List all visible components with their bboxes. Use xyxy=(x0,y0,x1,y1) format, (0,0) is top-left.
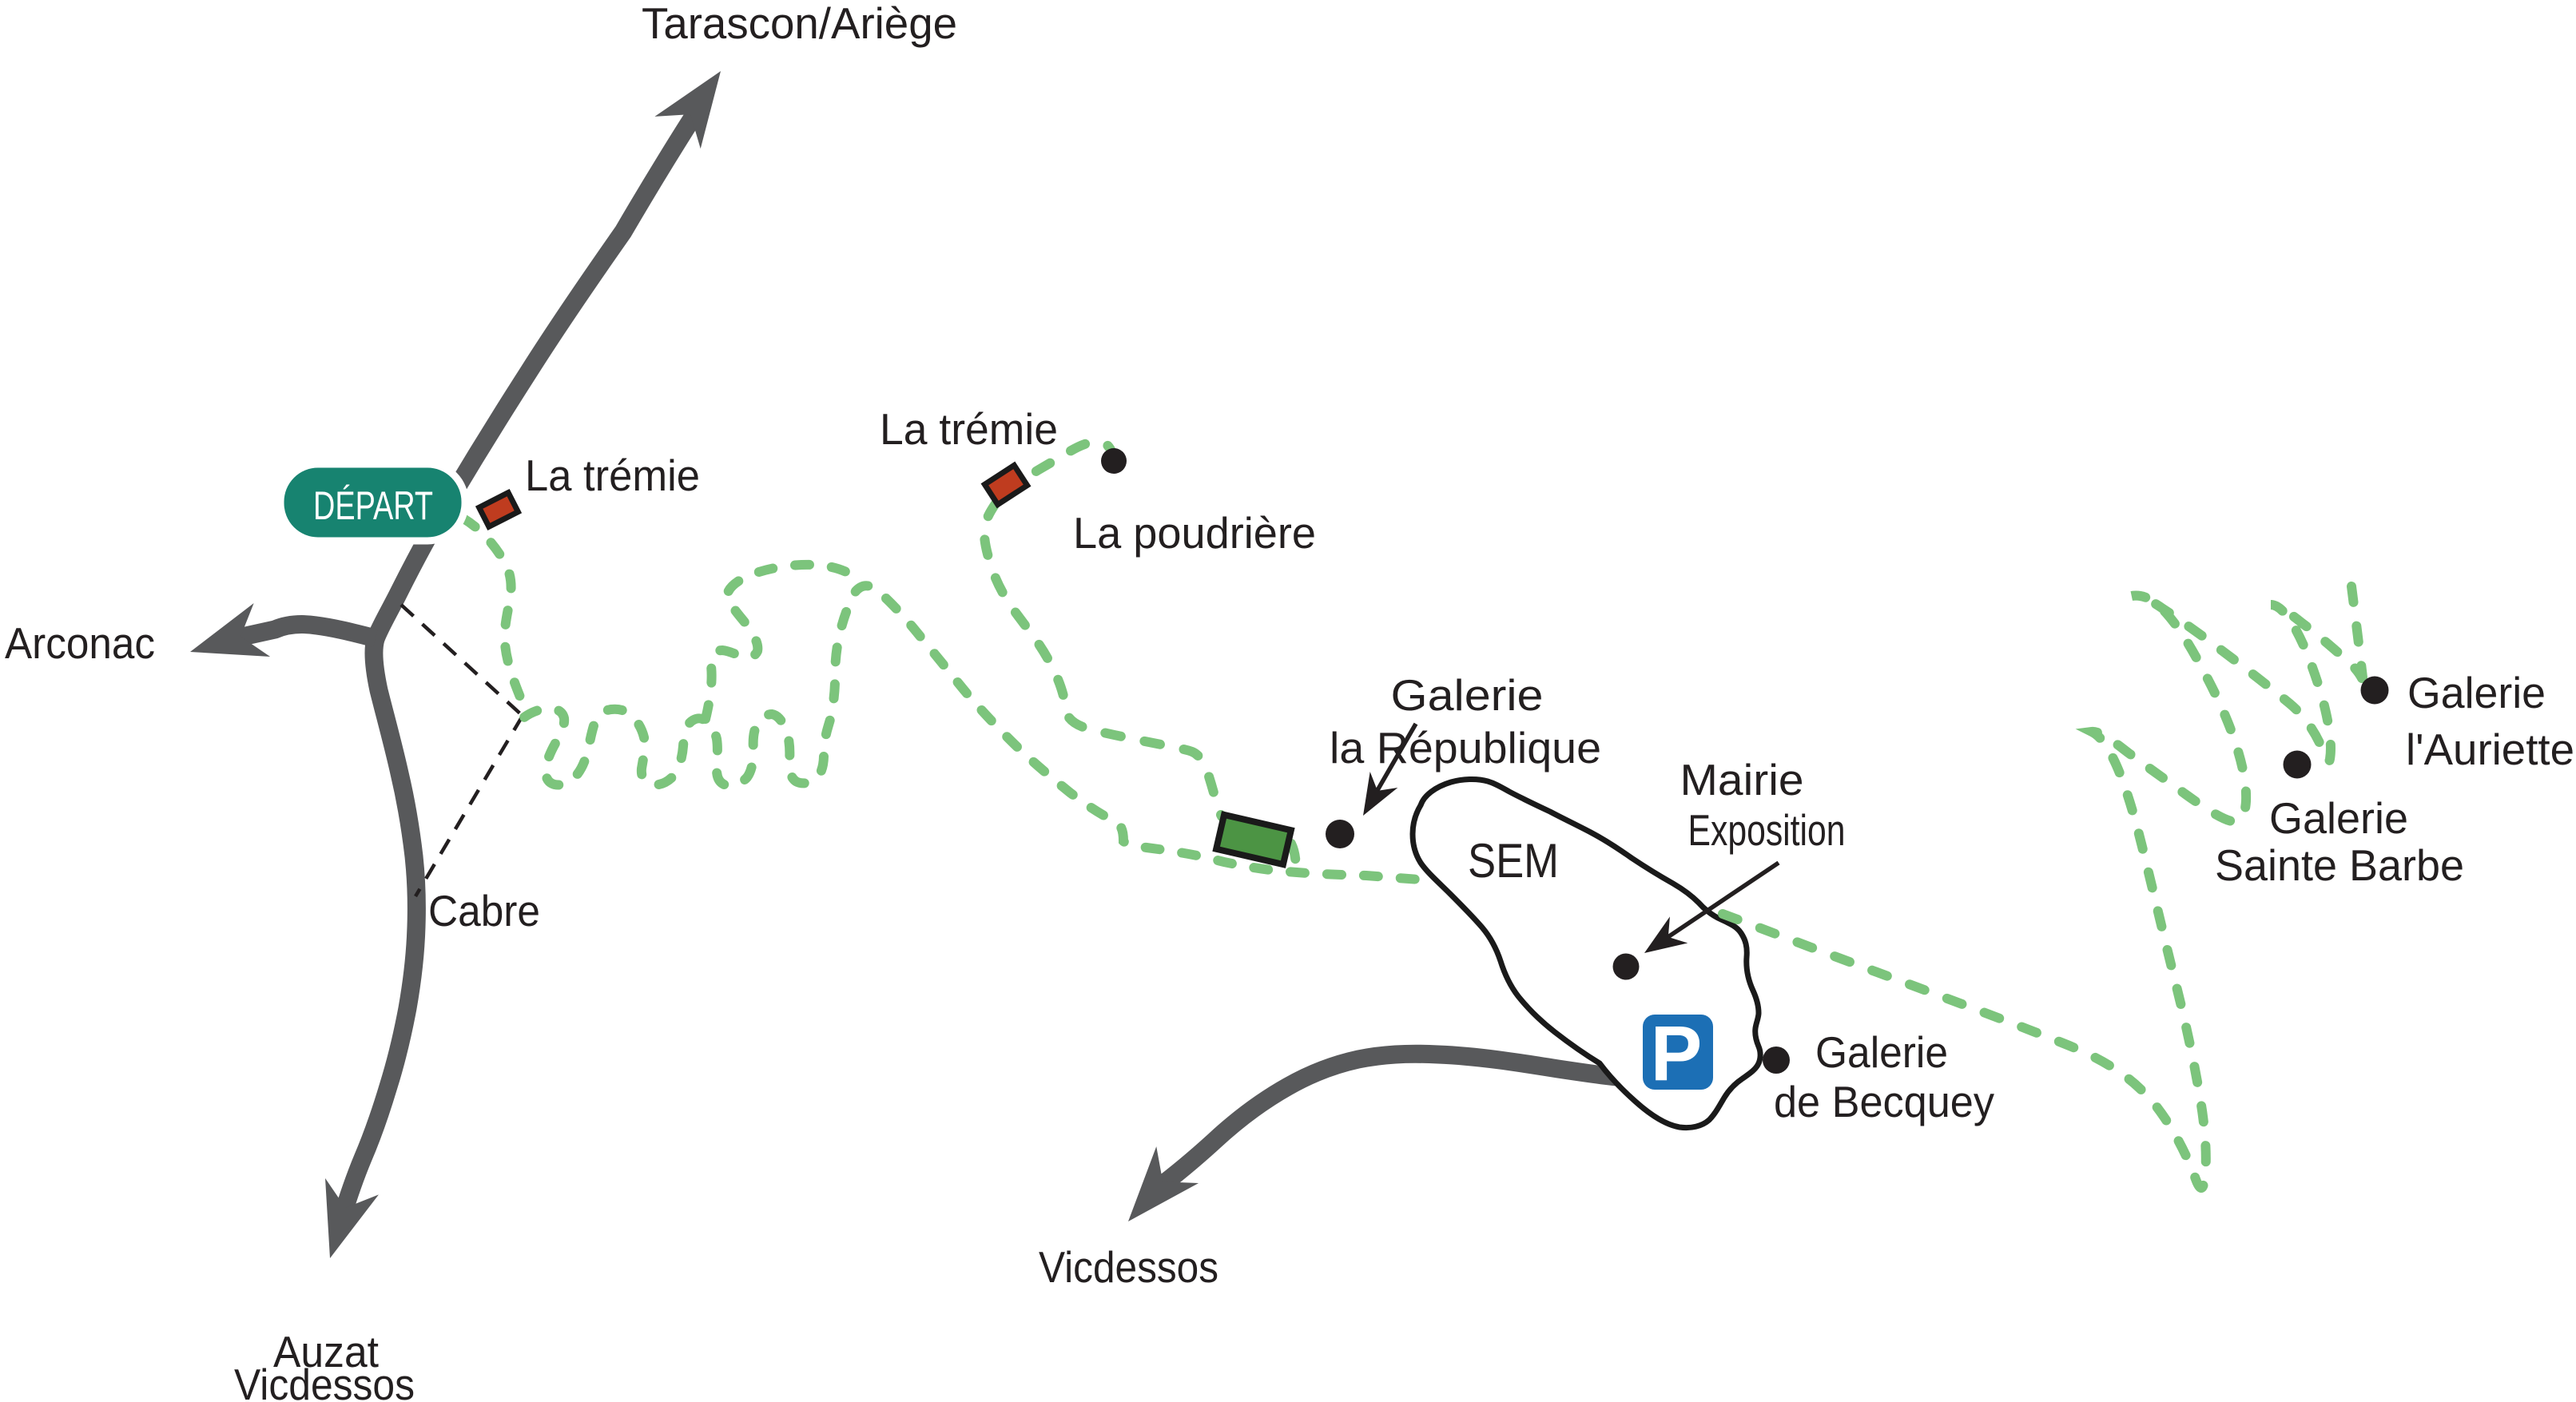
svg-text:SEM: SEM xyxy=(1468,834,1559,888)
svg-text:DÉPART: DÉPART xyxy=(313,483,433,528)
svg-text:La trémie: La trémie xyxy=(880,404,1058,454)
svg-text:Exposition: Exposition xyxy=(1688,805,1846,855)
svg-text:Cabre: Cabre xyxy=(428,886,540,935)
svg-text:la République: la République xyxy=(1330,723,1601,772)
svg-text:Arconac: Arconac xyxy=(5,618,155,668)
svg-text:Sainte Barbe: Sainte Barbe xyxy=(2215,840,2464,890)
svg-text:Galerie: Galerie xyxy=(2407,668,2546,717)
svg-text:Vicdessos: Vicdessos xyxy=(234,1360,415,1402)
svg-text:Mairie: Mairie xyxy=(1680,755,1804,804)
svg-text:P: P xyxy=(1651,1010,1703,1097)
svg-text:La trémie: La trémie xyxy=(525,451,700,500)
svg-text:l'Auriette: l'Auriette xyxy=(2406,725,2574,774)
svg-text:Tarascon/Ariège: Tarascon/Ariège xyxy=(642,0,957,48)
svg-text:Vicdessos: Vicdessos xyxy=(1039,1242,1218,1292)
svg-text:La poudrière: La poudrière xyxy=(1073,508,1316,558)
svg-text:Galerie: Galerie xyxy=(1815,1027,1948,1077)
svg-text:Galerie: Galerie xyxy=(2269,793,2408,843)
svg-text:de Becquey: de Becquey xyxy=(1774,1077,1994,1126)
svg-text:Galerie: Galerie xyxy=(1391,670,1544,720)
